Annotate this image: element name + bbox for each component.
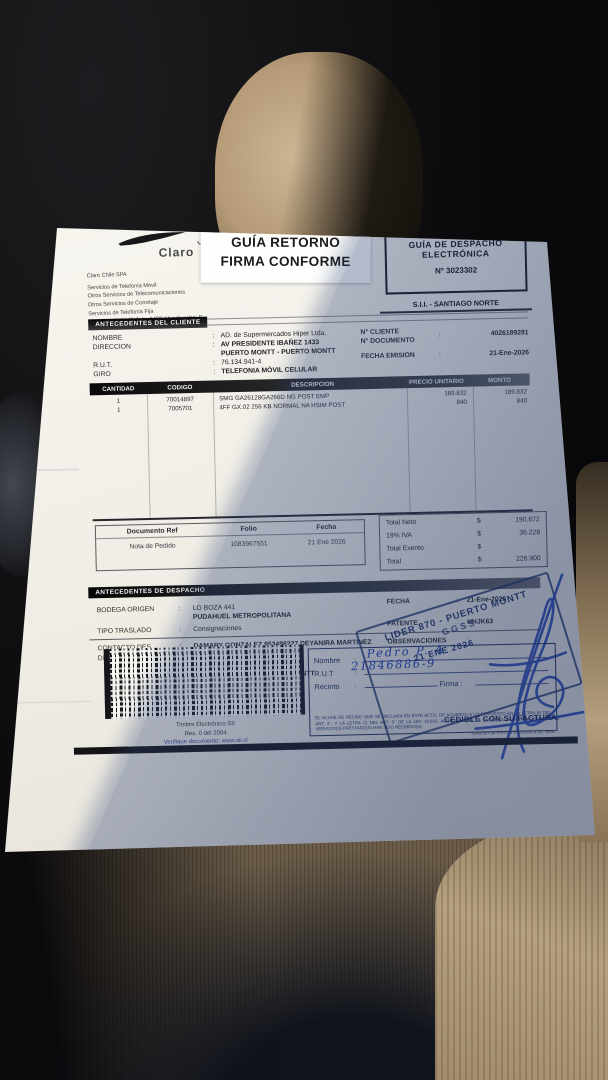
photo-of-dispatch-document: Claro Claro Chile SPA Servicios de Telef…	[0, 0, 608, 1080]
ref-h-documento: Documento Ref	[96, 526, 209, 536]
cell-cantidad: 1	[90, 406, 147, 414]
claro-logo: Claro	[158, 245, 194, 260]
colon: :	[212, 332, 214, 339]
sticker-line1: GUÍA RETORNO	[201, 235, 371, 250]
client-giro-label: GIRO	[93, 371, 111, 378]
col-codigo: CODIGO	[147, 383, 213, 391]
cell-cantidad: 1	[90, 397, 147, 405]
colon: :	[213, 359, 215, 366]
client-rut: 76.134.941-4	[221, 358, 261, 366]
client-direccion-label: DIRECCION	[93, 343, 131, 351]
cell-codigo: 70014897	[147, 396, 213, 404]
client-section-title: ANTECEDENTES DEL CLIENTE	[88, 317, 208, 331]
cell-codigo: 7005701	[147, 405, 213, 413]
client-nombre: AD. de Supermercados Hiper Ltda.	[220, 330, 326, 339]
beige-seat-cushion	[435, 818, 608, 1080]
colon: :	[213, 341, 215, 348]
colon: :	[179, 626, 181, 633]
colon: :	[179, 605, 181, 612]
colon: :	[213, 368, 215, 375]
tipo-label: TIPO TRASLADO	[97, 627, 151, 635]
col-cantidad: CANTIDAD	[90, 385, 147, 393]
bodega-label: BODEGA ORIGEN	[97, 606, 155, 614]
client-direccion1: AV PRESIDENTE IBAÑEZ 1433	[221, 339, 320, 348]
ref-documento: Nota de Pedido	[96, 542, 209, 552]
client-rut-label: R.U.T.	[93, 362, 112, 369]
client-nombre-label: NOMBRE	[92, 335, 122, 343]
